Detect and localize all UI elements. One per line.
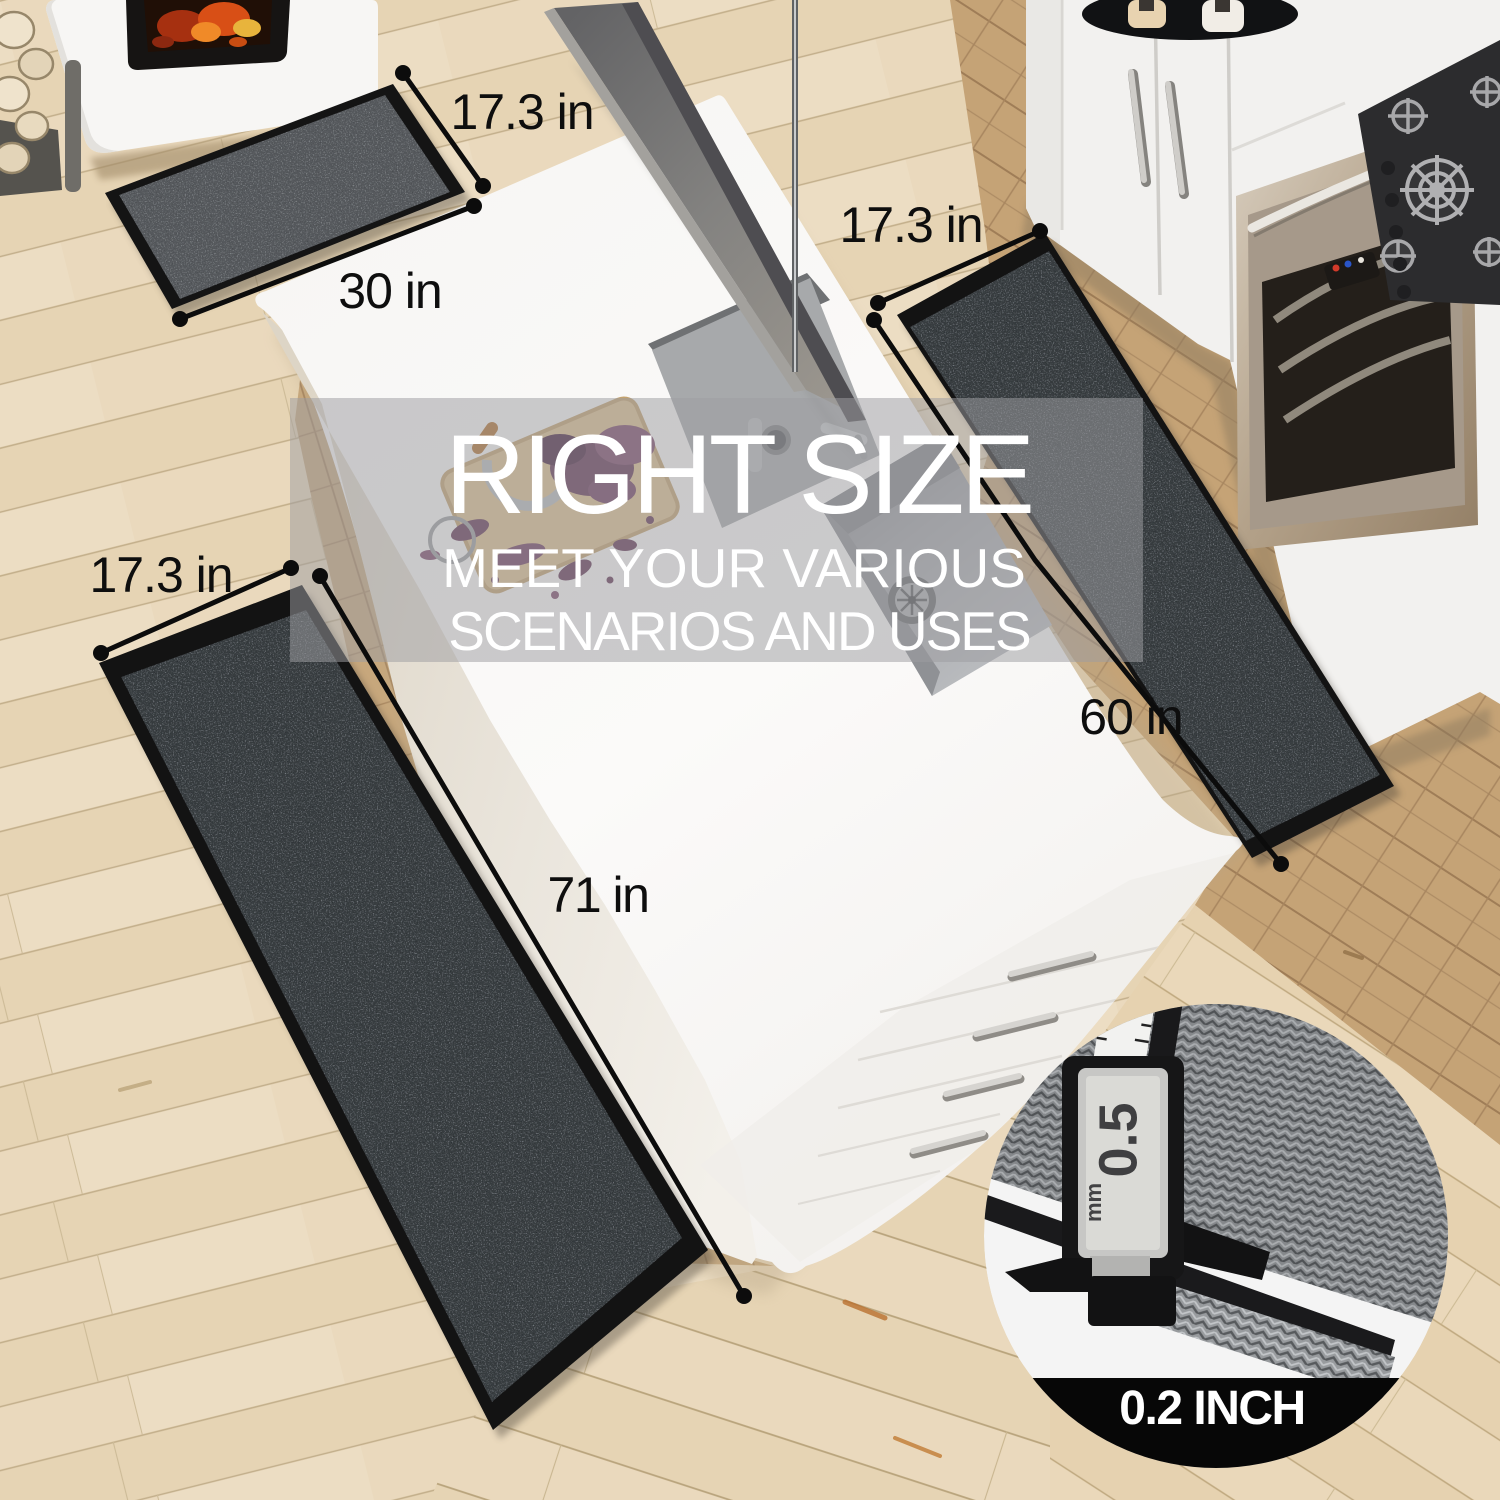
svg-text:SCENARIOS AND USES: SCENARIOS AND USES bbox=[448, 600, 1030, 662]
svg-text:71 in: 71 in bbox=[548, 867, 649, 923]
svg-text:RIGHT SIZE: RIGHT SIZE bbox=[445, 412, 1031, 537]
svg-text:17.3 in: 17.3 in bbox=[450, 84, 593, 140]
svg-text:17.3 in: 17.3 in bbox=[89, 547, 232, 603]
svg-text:MEET YOUR VARIOUS: MEET YOUR VARIOUS bbox=[442, 537, 1026, 599]
svg-text:17.3 in: 17.3 in bbox=[839, 197, 982, 253]
svg-text:0.2 INCH: 0.2 INCH bbox=[1119, 1382, 1304, 1435]
svg-text:60 in: 60 in bbox=[1079, 689, 1182, 745]
svg-text:30 in: 30 in bbox=[338, 263, 441, 319]
svg-text:0.5: 0.5 bbox=[1088, 1102, 1148, 1177]
svg-text:mm: mm bbox=[1081, 1183, 1106, 1222]
